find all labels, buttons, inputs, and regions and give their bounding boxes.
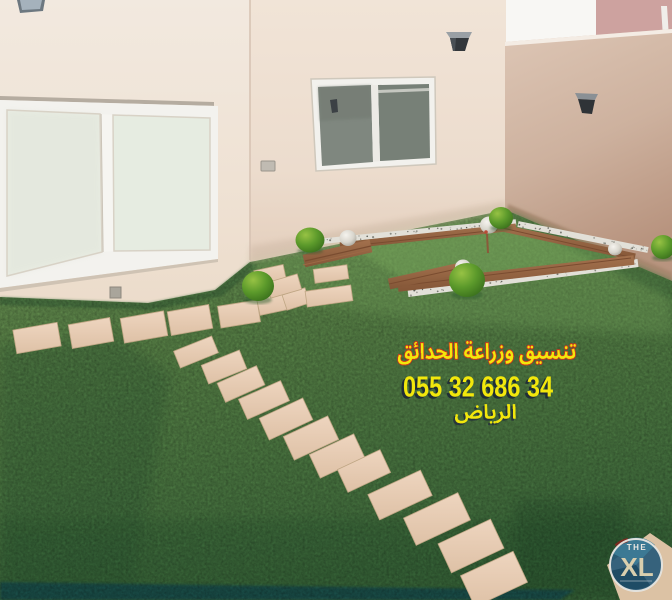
svg-text:THE: THE (627, 543, 648, 552)
svg-text:055 32 686 34: 055 32 686 34 (403, 372, 553, 404)
svg-text:XL: XL (620, 552, 653, 582)
